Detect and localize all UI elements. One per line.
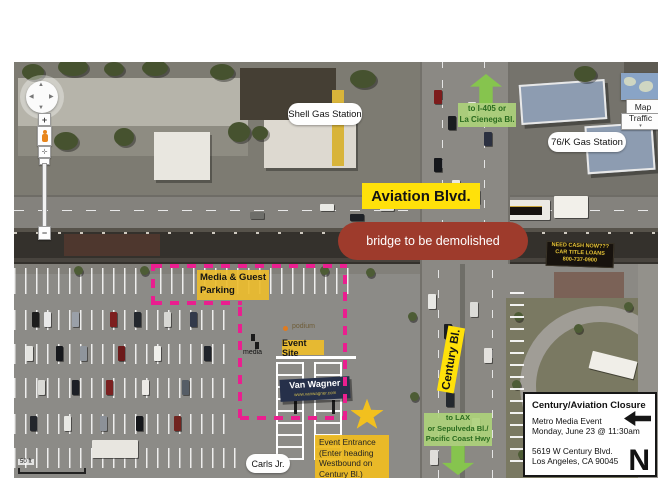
map-texture [434, 158, 442, 172]
map-texture [64, 416, 71, 431]
scale-line [18, 468, 86, 474]
event-entrance-line2: (Enter heading [319, 448, 385, 459]
map-texture [106, 380, 113, 395]
map-texture [14, 232, 658, 234]
to-i405-label: to I-405 or La Cienega Bl. [458, 103, 516, 127]
map-texture [30, 416, 37, 431]
mini-map-continent [639, 81, 653, 92]
page: Van Wagner www.vanwagner.com NEED CASH N… [0, 0, 672, 504]
aviation-blvd-label: Aviation Blvd. [362, 183, 480, 209]
satellite-map[interactable]: Van Wagner www.vanwagner.com NEED CASH N… [14, 62, 658, 478]
north-arrow-icon [624, 411, 651, 426]
camera-icon [251, 334, 255, 341]
map-texture [228, 122, 250, 142]
map-texture [484, 348, 492, 363]
event-boundary-bottom [240, 416, 347, 420]
map-texture [14, 378, 228, 398]
zoom-in-glyph: + [42, 115, 47, 125]
shell-gas-station-text: Shell Gas Station [288, 109, 361, 120]
podium-label: podium [292, 323, 315, 330]
map-texture [64, 234, 160, 256]
pan-down-button[interactable]: ▼ [38, 105, 44, 111]
map-texture [294, 400, 297, 414]
map-texture [624, 302, 633, 311]
map-texture [174, 416, 181, 431]
map-texture [408, 312, 417, 321]
map-texture [136, 416, 143, 431]
map-texture [554, 196, 588, 218]
media-label: media [243, 349, 262, 356]
map-texture [104, 62, 124, 76]
camera-icon [255, 342, 259, 349]
shell-gas-station-label: Shell Gas Station [288, 103, 362, 125]
event-entrance-line4: Century Bl.) [319, 469, 385, 479]
map-texture [38, 380, 45, 395]
76k-gas-station-text: 76/K Gas Station [551, 137, 623, 148]
map-texture [492, 264, 493, 478]
pegman-button[interactable] [37, 126, 52, 146]
event-boundary-top [153, 264, 347, 268]
map-texture [350, 70, 376, 88]
map-texture [510, 290, 524, 462]
map-texture [428, 294, 436, 309]
map-texture [204, 346, 211, 361]
pegman-icon [42, 130, 47, 142]
map-texture [18, 126, 248, 156]
map-texture [72, 380, 79, 395]
map-texture [164, 312, 171, 327]
map-texture [434, 90, 442, 104]
zoom-slider-track[interactable] [42, 163, 47, 228]
map-texture [182, 380, 189, 395]
zoom-slider-handle[interactable]: ✛ [38, 146, 51, 158]
event-site-text: Event Site [282, 338, 324, 358]
map-texture [484, 132, 492, 146]
map-view-button[interactable]: Map [626, 99, 658, 114]
info-address-line1: 5619 W Century Blvd. [532, 446, 613, 456]
map-texture [366, 268, 375, 277]
aviation-blvd-text: Aviation Blvd. [371, 188, 470, 205]
media-guest-line1: Media & Guest [200, 271, 266, 284]
map-texture [410, 392, 419, 401]
map-texture [134, 312, 141, 327]
map-texture [250, 212, 264, 219]
zoom-out-button[interactable]: − [38, 226, 51, 240]
map-texture [142, 380, 149, 395]
map-texture [110, 312, 117, 327]
event-boundary-inner [238, 303, 242, 418]
76k-gas-station-label: 76/K Gas Station [548, 132, 626, 152]
map-texture [54, 132, 78, 150]
map-texture [554, 272, 624, 298]
bridge-demolish-label: bridge to be demolished [338, 222, 528, 260]
map-texture [26, 346, 33, 361]
map-button-text: Map [635, 102, 652, 112]
map-texture [80, 346, 87, 361]
podium-dot-icon [283, 326, 288, 331]
event-entrance-label: Event Entrance (Enter heading Westbound … [315, 435, 389, 478]
event-entrance-line1: Event Entrance [319, 437, 385, 448]
map-texture [190, 312, 197, 327]
event-entrance-line3: Westbound on [319, 458, 385, 469]
to-i405-line2: La Cienega Bl. [458, 114, 516, 125]
info-address-line2: Los Angeles, CA 90045 [532, 456, 618, 466]
map-texture [350, 214, 364, 221]
to-lax-line1: to LAX [424, 413, 492, 424]
map-texture [574, 66, 596, 82]
map-texture [519, 79, 608, 125]
pan-up-button[interactable]: ▲ [38, 82, 44, 88]
traffic-button[interactable]: Traffic ▾ [621, 113, 658, 130]
map-texture [252, 126, 268, 140]
to-lax-line2: or Sepulveda Bl./ [424, 424, 492, 435]
map-texture [332, 400, 335, 414]
map-texture [430, 450, 438, 465]
map-texture [114, 128, 134, 146]
info-event-line1: Metro Media Event [532, 416, 602, 426]
event-boundary-left [151, 264, 155, 305]
event-site-label: Event Site [282, 340, 324, 355]
to-lax-line3: Pacific Coast Hwy [424, 434, 492, 445]
carls-jr-label: Carls Jr. [246, 454, 290, 473]
map-texture [44, 312, 51, 327]
carls-jr-text: Carls Jr. [251, 459, 284, 469]
pan-left-button[interactable]: ◀ [29, 93, 34, 100]
info-event-line2: Monday, June 23 @ 11:30am [532, 426, 640, 436]
to-i405-line1: to I-405 or [458, 103, 516, 114]
event-boundary-notch [153, 301, 242, 305]
traffic-caret-icon: ▾ [639, 122, 642, 130]
map-texture [140, 266, 149, 275]
map-texture [154, 132, 210, 180]
map-texture [574, 324, 583, 333]
media-guest-parking-label: Media & Guest Parking [197, 270, 269, 300]
media-guest-line2: Parking [200, 284, 266, 297]
scale-label: 50 ft [18, 459, 34, 465]
map-texture [210, 64, 234, 80]
mini-map-continent [624, 77, 636, 86]
map-texture [276, 362, 304, 460]
map-texture [332, 90, 344, 166]
map-texture [56, 346, 63, 361]
overview-mini-map[interactable] [621, 73, 658, 100]
map-texture [42, 134, 48, 142]
zoom-in-button[interactable]: + [38, 113, 51, 126]
traffic-button-text: Traffic [629, 114, 652, 122]
info-title: Century/Aviation Closure [532, 400, 646, 411]
north-letter: N [628, 447, 650, 474]
map-texture [14, 414, 228, 434]
map-texture [72, 312, 79, 327]
scale-bar: 50 ft [18, 450, 86, 474]
map-texture [154, 346, 161, 361]
bridge-demolish-text: bridge to be demolished [366, 234, 499, 248]
pan-right-button[interactable]: ▶ [49, 93, 54, 100]
zoom-out-glyph: − [42, 228, 47, 238]
event-boundary-right [343, 264, 347, 420]
car-title-loans-billboard: NEED CASH NOW??? CAR TITLE LOANS 800-737… [546, 241, 615, 268]
map-texture [446, 392, 454, 407]
map-texture [470, 302, 478, 317]
to-lax-label: to LAX or Sepulveda Bl./ Pacific Coast H… [424, 413, 492, 446]
closure-info-box: Century/Aviation Closure Metro Media Eve… [523, 392, 657, 477]
map-texture [448, 116, 456, 130]
map-texture [74, 266, 83, 275]
map-texture [320, 204, 334, 211]
map-texture [32, 312, 39, 327]
van-wagner-billboard: Van Wagner www.vanwagner.com [279, 376, 350, 402]
map-texture [118, 346, 125, 361]
map-texture [100, 416, 107, 431]
map-texture [92, 440, 138, 458]
